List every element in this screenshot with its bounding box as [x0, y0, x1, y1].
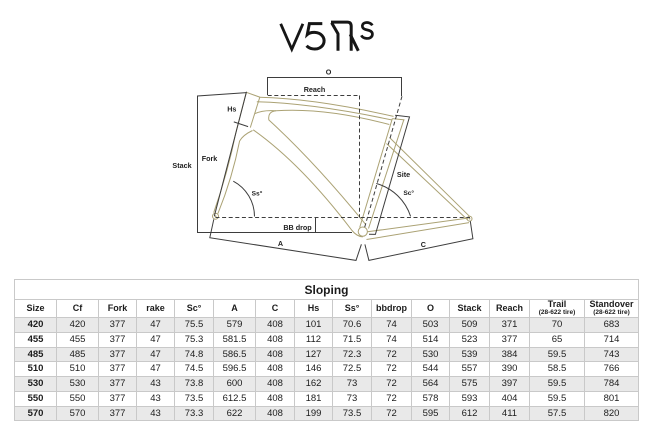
svg-text:Fork: Fork: [202, 154, 218, 163]
svg-text:A: A: [278, 239, 283, 248]
svg-text:BB drop: BB drop: [283, 223, 312, 232]
svg-text:C: C: [421, 240, 426, 249]
svg-text:Sc°: Sc°: [403, 189, 414, 197]
svg-text:Stack: Stack: [172, 161, 191, 170]
svg-text:Ss°: Ss°: [252, 189, 263, 197]
svg-text:Hs: Hs: [227, 104, 236, 113]
svg-text:Site: Site: [397, 170, 410, 179]
svg-text:Reach: Reach: [304, 85, 326, 94]
svg-text:O: O: [326, 67, 332, 76]
